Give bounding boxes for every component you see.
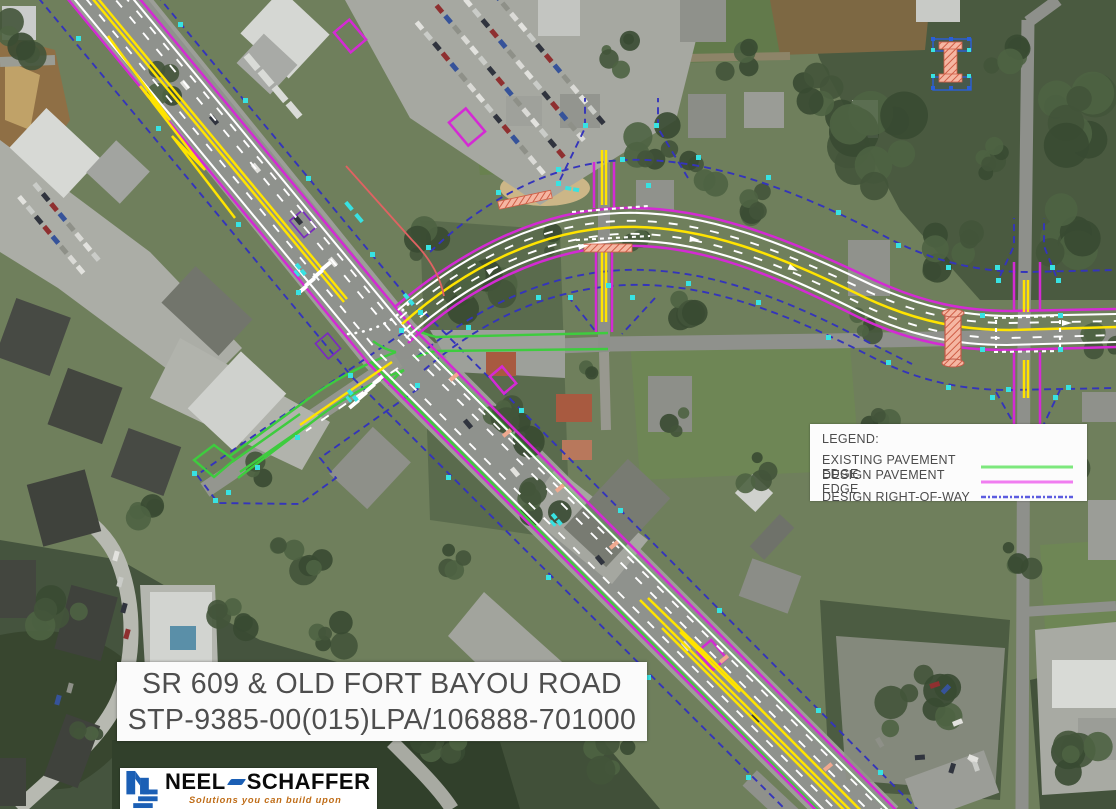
median-structure [942,309,964,367]
legend-item-right-of-way: DESIGN RIGHT-OF-WAY [822,489,1075,504]
vehicle [915,755,925,761]
tree [661,140,678,157]
tree [70,603,88,621]
tree [306,560,322,576]
tree [1044,123,1089,168]
title-line-1: SR 609 & OLD FORT BAYOU ROAD [142,666,622,702]
tree [1003,542,1014,553]
tree [997,49,1023,75]
tree [1083,732,1112,761]
tree [284,540,305,561]
tree [874,686,907,719]
tree [682,300,708,326]
tree [740,39,758,57]
legend-title: LEGEND: [822,432,1075,446]
tree [960,230,979,249]
tree [34,598,57,621]
tree [880,92,928,140]
tree [442,544,455,557]
tree [882,720,900,738]
neel-schaffer-mark-icon [124,770,160,809]
tree [797,88,824,115]
tree [318,627,332,641]
logo-name-part2: SCHAFFER [247,770,371,794]
legend-item-design-pavement: DESIGN PAVEMENT EDGE [822,474,1075,489]
tree [208,600,228,620]
tree [1062,745,1080,763]
tree [69,721,86,738]
tree [752,452,763,463]
tree [985,137,1003,155]
tree [857,325,869,337]
tree [1008,553,1029,574]
tree [620,740,635,755]
legend-line-design-pavement [979,479,1075,485]
tree [330,632,358,660]
tree [981,157,996,172]
tree [1064,220,1101,257]
tree [860,172,888,200]
legend-line-right-of-way [979,494,1075,500]
tree [456,550,472,566]
tree [586,756,615,785]
tree [694,169,716,191]
tree [678,407,689,418]
plan-sheet: LEGEND: EXISTING PAVEMENT EDGE DESIGN PA… [0,0,1116,809]
tree [612,61,630,79]
tree [1045,193,1078,226]
tree [637,150,654,167]
tree [126,505,151,530]
tree [161,64,179,82]
logo-dash-icon [227,779,246,785]
tree [270,537,286,553]
tree [871,408,886,423]
title-block: SR 609 & OLD FORT BAYOU ROAD STP-9385-00… [117,662,647,741]
tree [716,62,735,81]
tree [830,104,871,145]
tree [736,473,756,493]
tree [1066,86,1091,111]
tree [585,366,598,379]
tree [984,57,1000,73]
tree [620,31,640,51]
title-line-2: STP-9385-00(015)LPA/106888-701000 [128,702,637,738]
tree [804,63,830,89]
tree [749,202,767,220]
tree [234,613,253,632]
neel-schaffer-logo: NEEL SCHAFFER Solutions you can build up… [120,768,377,809]
tree [759,462,778,481]
tree [7,33,35,61]
tree [329,611,353,635]
legend-panel: LEGEND: EXISTING PAVEMENT EDGE DESIGN PA… [810,424,1087,501]
tree [670,425,682,437]
tree [1084,322,1105,343]
logo-name-part1: NEEL [165,770,226,794]
legend-label: DESIGN RIGHT-OF-WAY [822,490,970,504]
tree [922,235,949,262]
logo-text: NEEL SCHAFFER Solutions you can build up… [165,770,370,805]
tree [519,477,547,505]
logo-name: NEEL SCHAFFER [165,770,370,794]
logo-tagline: Solutions you can build upon [189,795,370,805]
legend-line-existing-pavement [979,464,1075,470]
